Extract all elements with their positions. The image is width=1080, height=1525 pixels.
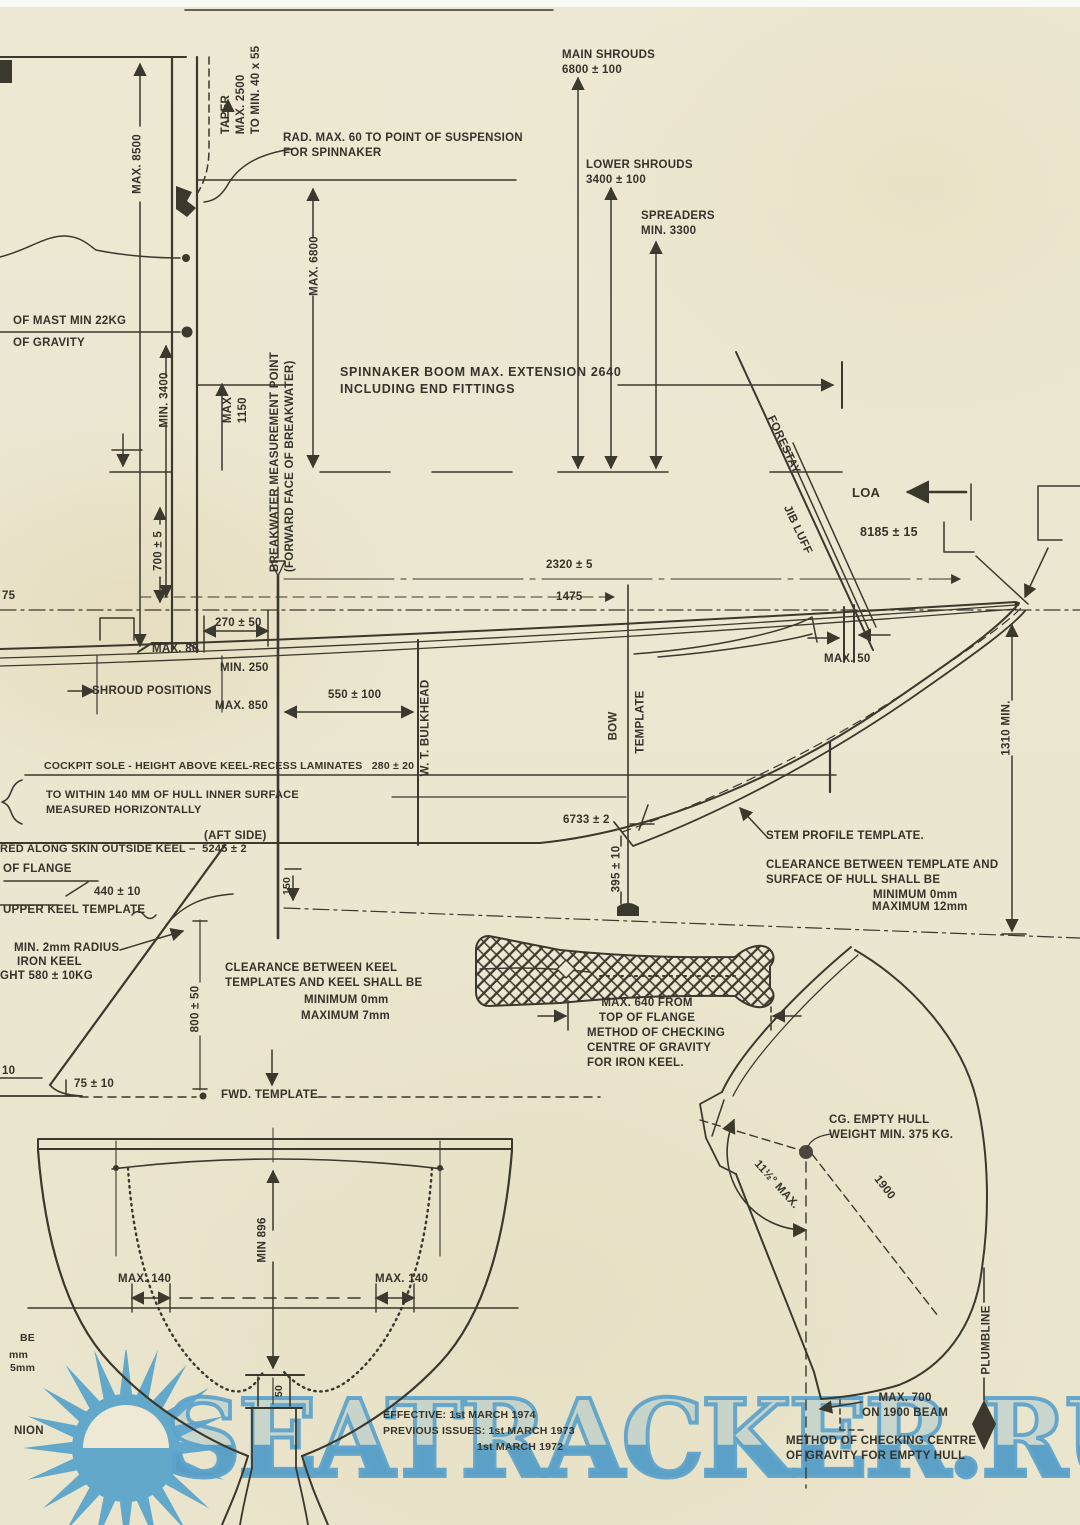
label-bow: BOW <box>606 712 621 741</box>
label-max-6800: MAX. 6800 <box>307 236 322 296</box>
label-keel-clearance-max: MAXIMUM 7mm <box>301 1009 390 1024</box>
label-lower-shrouds: LOWER SHROUDS 3400 ± 100 <box>586 158 693 188</box>
label-fragment-nion: NION <box>14 1424 44 1439</box>
label-max-140-left: MAX. 140 <box>118 1272 171 1287</box>
label-effective-date: EFFECTIVE: 1st MARCH 1974 <box>383 1409 536 1423</box>
label-cockpit-sole: COCKPIT SOLE - HEIGHT ABOVE KEEL-RECESS … <box>44 760 414 774</box>
label-dim-10: 10 <box>2 1064 15 1079</box>
label-dim-550: 550 ± 100 <box>328 688 381 703</box>
label-plumbline: PLUMBLINE <box>979 1305 994 1374</box>
label-mast-max-height: MAX. 8500 <box>130 134 145 194</box>
label-of-flange: OF FLANGE <box>3 862 72 877</box>
label-min-3400: MIN. 3400 <box>157 372 172 427</box>
cg-check-hull <box>700 947 996 1488</box>
label-along-skin: RED ALONG SKIN OUTSIDE KEEL – 5245 ± 2 <box>0 842 247 857</box>
label-cg-empty-hull: CG. EMPTY HULL WEIGHT MIN. 375 KG. <box>829 1113 953 1143</box>
label-dim-50: 50 <box>273 1385 287 1397</box>
label-breakwater-point: BREAKWATER MEASUREMENT POINT (FORWARD FA… <box>268 352 298 572</box>
label-max-140-right: MAX. 140 <box>375 1272 428 1287</box>
label-stem-clearance-max: MAXIMUM 12mm <box>872 900 968 915</box>
label-dim-395: 395 ± 10 <box>609 846 624 893</box>
label-previous-issue-1: PREVIOUS ISSUES: 1st MARCH 1973 <box>383 1425 575 1439</box>
label-mast-weight: OF MAST MIN 22KG <box>13 314 126 329</box>
scan-margin <box>0 0 1080 7</box>
measurement-drawing-page: SEATRACKER.RU SEATRACKER.RU SEATRACKER.R… <box>0 0 1080 1525</box>
label-max-1150: MAX 1150 <box>221 397 251 423</box>
label-spinnaker-radius: RAD. MAX. 60 TO POINT OF SUSPENSION FOR … <box>283 131 523 161</box>
label-dim-440: 440 ± 10 <box>94 885 141 900</box>
label-fragment-be: BE <box>20 1332 35 1346</box>
label-mast-taper: TAPER MAX. 2500 TO MIN. 40 x 55 <box>219 46 265 135</box>
label-inner-surface: TO WITHIN 140 MM OF HULL INNER SURFACE M… <box>46 788 299 817</box>
label-fragment-5mm: 5mm <box>10 1362 35 1376</box>
label-previous-issue-2: 1st MARCH 1972 <box>477 1441 563 1455</box>
label-method-iron-keel: METHOD OF CHECKING CENTRE OF GRAVITY FOR… <box>587 1026 725 1072</box>
label-radius-note: MIN. 2mm RADIUS <box>14 941 119 956</box>
label-max-700: MAX. 700 ON 1900 BEAM <box>862 1391 948 1421</box>
label-keel-clearance-min: MINIMUM 0mm <box>304 993 389 1008</box>
label-loa: LOA <box>852 484 880 501</box>
label-max-80: MAX. 80 <box>152 642 199 657</box>
label-min-896: MIN 896 <box>255 1217 270 1262</box>
label-method-empty-hull: METHOD OF CHECKING CENTRE OF GRAVITY FOR… <box>786 1434 976 1464</box>
label-dim-700: 700 ± 5 <box>151 531 166 571</box>
label-upper-keel-template: UPPER KEEL TEMPLATE <box>3 903 145 918</box>
label-bow-template: TEMPLATE <box>633 690 648 753</box>
label-min-1310: 1310 MIN. <box>999 700 1014 755</box>
label-dim-75: 75 ± 10 <box>74 1077 114 1092</box>
label-keel-clearance: CLEARANCE BETWEEN KEEL TEMPLATES AND KEE… <box>225 961 422 991</box>
label-mast-gravity: OF GRAVITY <box>13 336 85 351</box>
label-dim-800: 800 ± 50 <box>188 986 203 1033</box>
label-dim-270: 270 ± 50 <box>215 616 262 631</box>
label-dim-1475: 1475 <box>556 590 583 605</box>
label-max-50: MAX. 50 <box>824 652 871 667</box>
label-wt-bulkhead: W. T. BULKHEAD <box>418 680 433 777</box>
label-max-850: MAX. 850 <box>215 699 268 714</box>
label-keel-weight: GHT 580 ± 10KG <box>0 969 93 984</box>
midship-section <box>28 1128 518 1525</box>
label-dim-2320: 2320 ± 5 <box>546 558 593 573</box>
label-main-shrouds: MAIN SHROUDS 6800 ± 100 <box>562 48 655 78</box>
forestay-group <box>736 352 1080 650</box>
label-fwd-template: FWD. TEMPLATE <box>221 1088 318 1103</box>
label-iron-keel: IRON KEEL <box>17 955 82 970</box>
label-dim-6733: 6733 ± 2 <box>563 813 610 828</box>
label-shroud-positions: SHROUD POSITIONS <box>92 684 212 699</box>
label-stem-template: STEM PROFILE TEMPLATE. <box>766 829 924 844</box>
label-fragment-mm: mm <box>9 1349 28 1363</box>
label-spreaders: SPREADERS MIN. 3300 <box>641 209 715 239</box>
label-min-250: MIN. 250 <box>220 661 269 676</box>
label-max-640: MAX. 640 FROM TOP OF FLANGE <box>599 996 695 1026</box>
label-spinnaker-boom: SPINNAKER BOOM MAX. EXTENSION 2640 INCLU… <box>340 364 622 397</box>
label-loa-value: 8185 ± 15 <box>860 524 918 541</box>
label-dim-775: 75 <box>2 589 15 604</box>
label-stem-clearance: CLEARANCE BETWEEN TEMPLATE AND SURFACE O… <box>766 858 998 888</box>
label-dim-150: 150 <box>281 877 295 895</box>
